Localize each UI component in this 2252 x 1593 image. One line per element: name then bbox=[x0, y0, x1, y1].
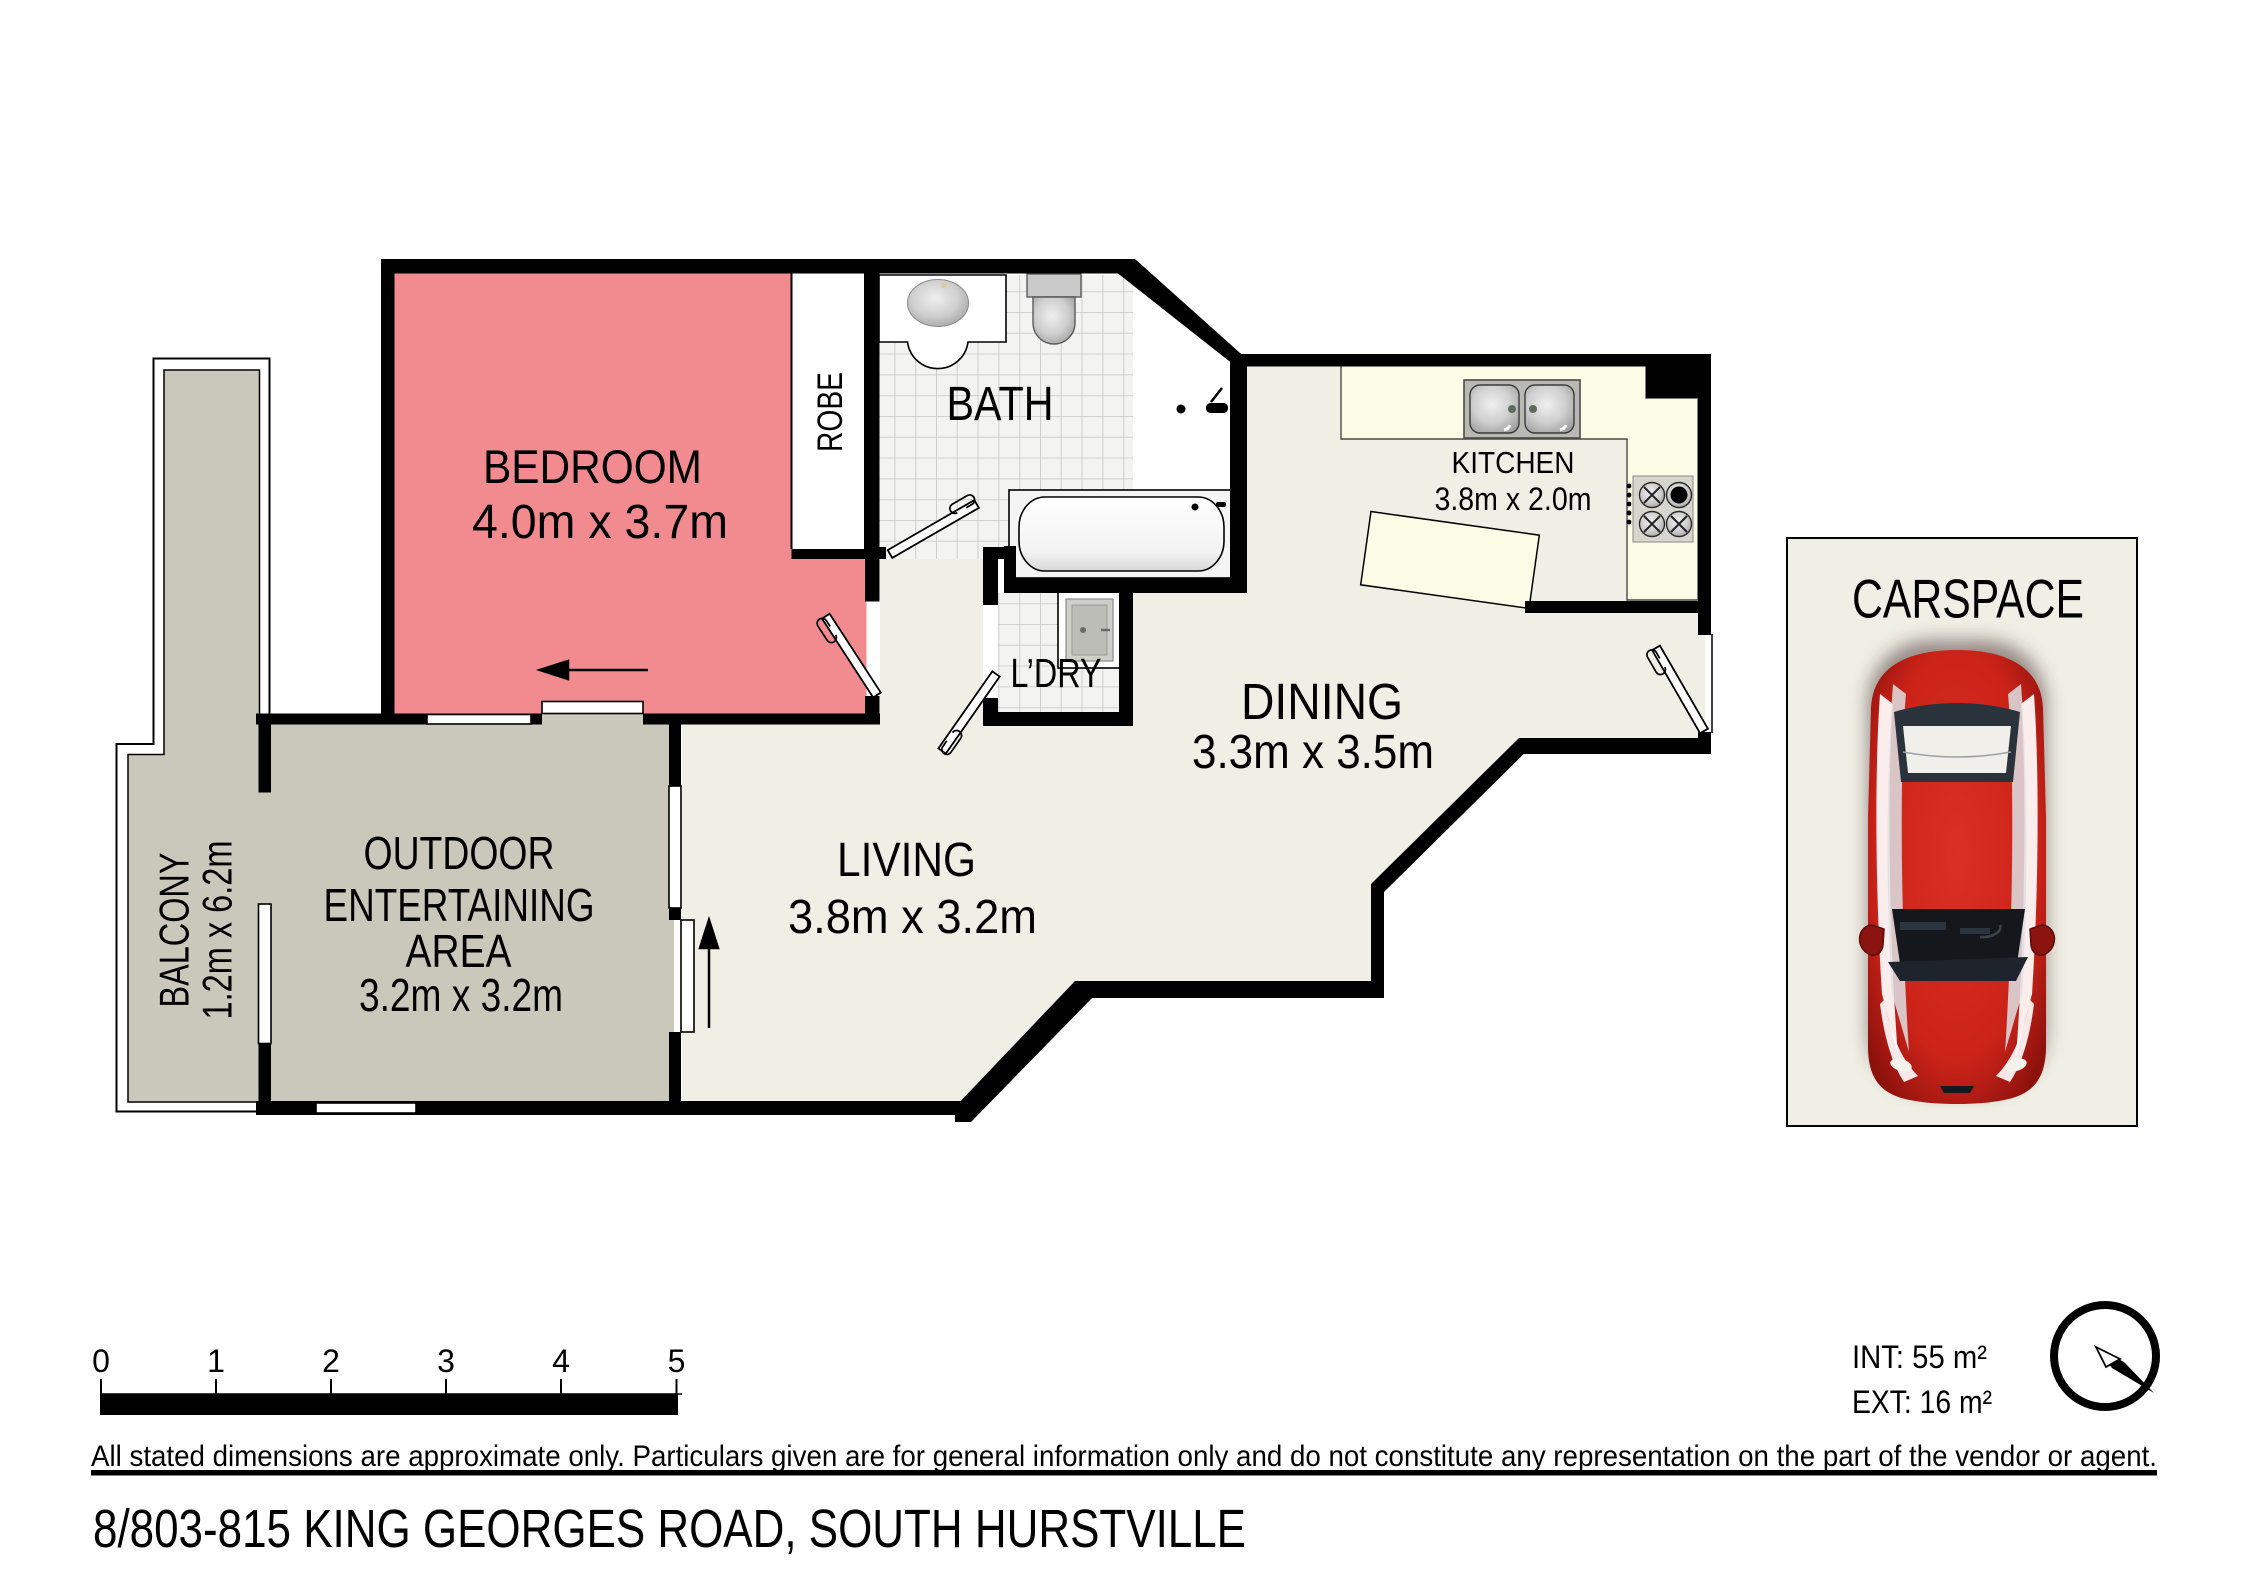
svg-text:1: 1 bbox=[207, 1343, 225, 1379]
svg-text:1.2m x 6.2m: 1.2m x 6.2m bbox=[194, 841, 241, 1020]
svg-text:DINING: DINING bbox=[1241, 673, 1403, 730]
svg-text:LIVING: LIVING bbox=[837, 834, 976, 887]
svg-text:INT: 55 m²: INT: 55 m² bbox=[1852, 1339, 1987, 1375]
svg-text:ENTERTAINING: ENTERTAINING bbox=[324, 879, 595, 931]
svg-text:0: 0 bbox=[92, 1343, 110, 1379]
svg-text:OUTDOOR: OUTDOOR bbox=[364, 827, 555, 879]
svg-text:4: 4 bbox=[552, 1343, 570, 1379]
svg-text:KITCHEN: KITCHEN bbox=[1452, 445, 1575, 480]
svg-text:3.8m x 2.0m: 3.8m x 2.0m bbox=[1435, 481, 1592, 517]
svg-text:3.3m x 3.5m: 3.3m x 3.5m bbox=[1192, 726, 1434, 779]
svg-text:ROBE: ROBE bbox=[811, 372, 850, 452]
svg-text:4.0m x 3.7m: 4.0m x 3.7m bbox=[472, 496, 728, 549]
svg-text:2: 2 bbox=[322, 1343, 340, 1379]
svg-text:All stated dimensions are appr: All stated dimensions are approximate on… bbox=[91, 1440, 2157, 1473]
svg-text:BATH: BATH bbox=[947, 378, 1054, 431]
svg-text:BALCONY: BALCONY bbox=[151, 853, 198, 1008]
svg-text:5: 5 bbox=[668, 1343, 686, 1379]
svg-text:8/803-815 KING GEORGES ROAD, S: 8/803-815 KING GEORGES ROAD, SOUTH HURST… bbox=[93, 1499, 1246, 1559]
svg-text:3.2m x 3.2m: 3.2m x 3.2m bbox=[359, 969, 563, 1021]
svg-text:3: 3 bbox=[437, 1343, 455, 1379]
svg-text:3.8m x 3.2m: 3.8m x 3.2m bbox=[788, 891, 1037, 944]
svg-text:L’DRY: L’DRY bbox=[1011, 650, 1102, 696]
svg-text:CARSPACE: CARSPACE bbox=[1852, 568, 2084, 630]
svg-text:EXT: 16 m²: EXT: 16 m² bbox=[1852, 1384, 1992, 1420]
svg-text:BEDROOM: BEDROOM bbox=[483, 440, 702, 493]
